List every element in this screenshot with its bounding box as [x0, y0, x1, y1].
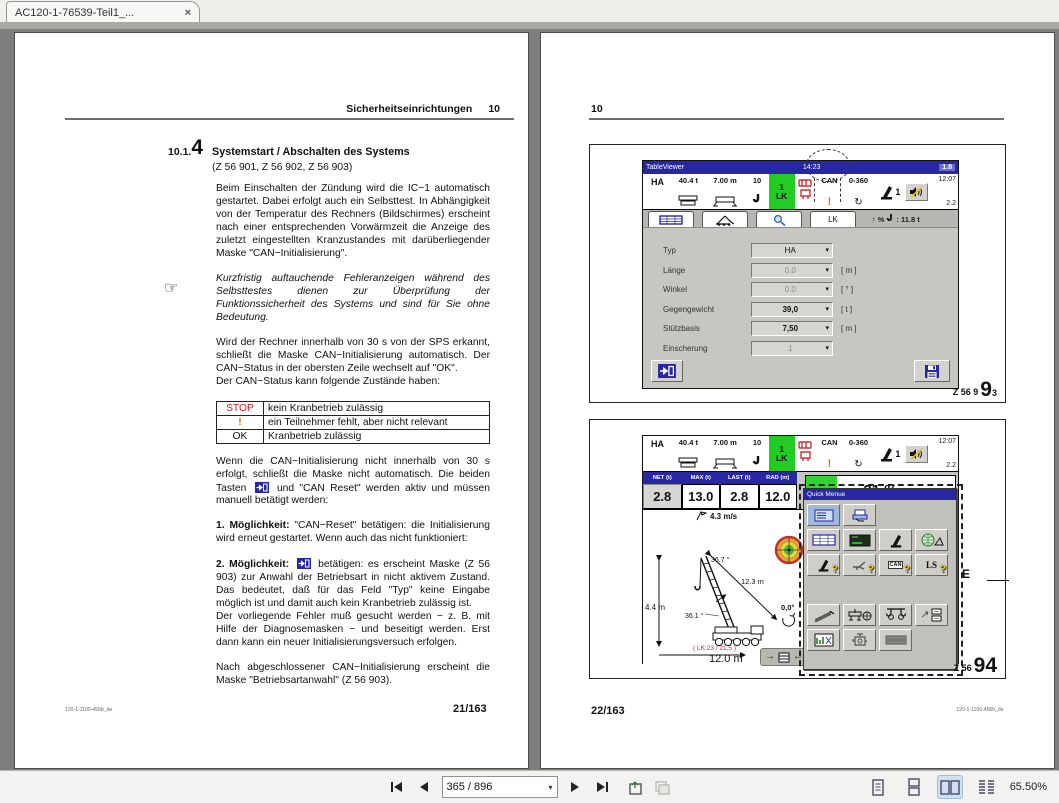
lever-number: 1 — [895, 449, 900, 459]
exit-mask-button[interactable] — [651, 360, 683, 382]
figure-ref-small: Z 56 — [954, 663, 972, 673]
page-navigation: 365 / 896 ▾ — [388, 771, 672, 803]
quickmenu-grid: ? ? CAN ? LS ? — [804, 500, 956, 655]
question-icon: ? — [868, 564, 874, 575]
hmi-status-bar: HA 40.4 t 7.00 m 10 — [643, 436, 958, 472]
hmi-titlebar: TableViewer 14:23 1.8 — [643, 161, 958, 174]
section-number-prefix: 10.1. — [168, 146, 191, 158]
clock-wind-cell: 12:07 2.2 — [929, 436, 958, 471]
mode-indicator: HA — [643, 174, 672, 209]
mute-button[interactable] — [905, 183, 928, 201]
clock-wind-cell: 12:07 2.2 — [929, 174, 958, 209]
previous-page-icon — [418, 781, 429, 793]
clock-value: 12:07 — [938, 438, 956, 445]
counterweight-icon — [677, 457, 699, 469]
load-chart-indicator: 1 LK — [769, 174, 795, 209]
figure-1: TableViewer 14:23 1.8 HA 40.4 t 7.00 m — [589, 144, 1006, 403]
can-label: CAN — [888, 561, 904, 569]
counterweight-cell: 40.4 t — [672, 174, 705, 209]
crane-icon — [712, 214, 738, 226]
counterweight-cell: 40.4 t — [672, 436, 705, 471]
stuetzbasis-dropdown[interactable]: 7,50 ▾ — [751, 321, 833, 336]
tab-search[interactable] — [756, 211, 802, 227]
single-page-icon — [871, 779, 885, 796]
laenge-dropdown[interactable]: 0.0 ▾ — [751, 263, 833, 278]
paragraph-text: Der CAN−Status kann folgende Zustände ha… — [216, 376, 490, 389]
hook-icon — [751, 193, 763, 207]
display-icon — [814, 509, 834, 522]
exit-mask-button-icon — [297, 558, 311, 569]
speaker-muted-icon — [909, 448, 924, 460]
paragraph: 2. Möglichkeit: betätigen: es erscheint … — [216, 558, 490, 650]
outrigger-icon — [712, 195, 738, 207]
can-state-desc: kein Kranbetrieb zulässig — [264, 401, 490, 415]
can-label: CAN — [821, 438, 837, 447]
tab-strip-shadow — [0, 22, 1059, 29]
chart-page-icon — [814, 633, 834, 647]
speaker-cell — [905, 174, 929, 209]
field-label: Typ — [663, 246, 751, 255]
field-label: Winkel — [663, 285, 751, 294]
rotation-icon: ↻ — [854, 198, 862, 207]
net-cell: NET (t) 2.8 — [643, 472, 682, 509]
ls-label: LS — [926, 560, 937, 570]
question-icon: ? — [940, 564, 946, 575]
reeving-value: 10 — [753, 176, 761, 185]
can-alert: ! — [828, 198, 832, 207]
page-number-input[interactable]: 365 / 896 ▾ — [442, 776, 558, 798]
rad-header: RAD (m) — [759, 472, 798, 484]
wind-value: 2.2 — [946, 462, 956, 469]
paragraph: Nach abgeschlossener CAN−Initialisierung… — [216, 662, 490, 688]
form-row: Stützbasis 7,50 ▾ [ m ] — [663, 319, 958, 339]
speaker-cell — [905, 436, 929, 471]
paragraph-text: Der vorliegende Fehler muß gesucht werde… — [216, 611, 490, 650]
qm-console-button[interactable] — [843, 529, 876, 551]
printer-hand-icon — [851, 508, 869, 522]
field-value: 39,0 — [755, 305, 825, 314]
annotation-circle — [806, 149, 850, 182]
hooks-icon — [885, 608, 907, 622]
grid-icon — [778, 652, 790, 663]
qm-engine-button[interactable] — [843, 629, 876, 651]
can-state-stop: STOP — [217, 401, 264, 415]
lever-number: 1 — [895, 187, 900, 197]
table-icon — [659, 215, 683, 225]
typ-dropdown[interactable]: HA ▾ — [751, 243, 833, 258]
section-title-block: Systemstart / Abschalten des Systems (Z … — [212, 146, 410, 173]
slew-angle-label: 0,0° — [781, 603, 794, 612]
qm-list-switch-button[interactable] — [915, 604, 948, 626]
joystick-icon — [880, 184, 893, 200]
can-state-desc: ein Teilnehmer fehlt, aber nicht relevan… — [264, 415, 490, 429]
view-controls: 65.50% — [866, 771, 1047, 803]
first-page-icon — [390, 781, 403, 793]
field-value: 1 — [755, 344, 825, 353]
floppy-disk-icon — [924, 364, 940, 379]
slew-range-cell: 0-360 ↻ — [841, 436, 876, 471]
quickmenu-window: Quick Menue — [803, 488, 957, 670]
tab-title: AC120-1-76539-Teil1_... — [15, 7, 179, 19]
can-state-desc: Kranbetrieb zulässig — [264, 429, 490, 443]
exit-mask-button-icon — [255, 482, 269, 493]
console-icon — [849, 534, 871, 547]
counterweight-icon — [677, 195, 699, 207]
page-number: 21/163 — [453, 703, 487, 715]
next-page-button[interactable] — [567, 778, 585, 796]
qm-outrigger-button[interactable] — [843, 604, 876, 626]
option-2-label: 2. Möglichkeit: — [216, 559, 289, 570]
counterweight-value: 40.4 t — [679, 176, 698, 185]
section-title: Systemstart / Abschalten des Systems — [212, 146, 410, 158]
header-title: Sicherheitseinrichtungen — [346, 103, 472, 115]
reeving-cell: 10 — [745, 436, 768, 471]
boom-angle-label: 36.1 ° — [685, 612, 704, 620]
field-label: Gegengewicht — [663, 305, 751, 314]
single-page-layout-button[interactable] — [866, 776, 890, 798]
percent-icon: % — [878, 215, 885, 224]
next-view-button[interactable] — [654, 778, 672, 796]
qm-print-button[interactable] — [843, 504, 876, 526]
section-refs: (Z 56 901, Z 56 902, Z 56 903) — [212, 162, 410, 173]
figure-ref-big: 9 — [980, 380, 992, 399]
table-row: OK Kranbetrieb zulässig — [217, 429, 490, 443]
callout-line — [987, 580, 1009, 581]
qm-hand-help-button[interactable]: ? — [843, 554, 876, 576]
boom-top-angle-label: 36.7 ° — [711, 556, 730, 564]
form-row: Länge 0.0 ▾ [ m ] — [663, 261, 958, 281]
document-tab[interactable]: AC120-1-76539-Teil1_... × — [6, 1, 200, 23]
qm-winch-button[interactable] — [879, 604, 912, 626]
lk-label: LK — [776, 192, 787, 201]
continuous-page-icon — [907, 778, 921, 796]
can-state-ok: OK — [217, 429, 264, 443]
wind-value: 2.2 — [946, 200, 956, 207]
document-id: 120-1-1100-456b_de — [65, 707, 112, 712]
height-dim-label: 4.4 m — [645, 603, 665, 612]
pointing-hand-icon: ☞ — [164, 279, 178, 299]
qm-chart-button[interactable] — [807, 629, 840, 651]
engine-icon — [852, 633, 868, 647]
app-title: TableViewer — [646, 164, 684, 171]
slew-range-value: 0-360 — [849, 438, 868, 447]
body-text-column: Beim Einschalten der Zündung wird die IC… — [216, 183, 490, 700]
figure-ref-small: Z 56 9 — [953, 387, 979, 397]
speaker-muted-icon — [909, 186, 924, 198]
field-unit: [ ° ] — [841, 285, 853, 294]
last-page-button[interactable] — [594, 778, 612, 796]
titlebar-version: 1.8 — [939, 164, 955, 171]
hmi-status-bar: HA 40.4 t 7.00 m 10 — [643, 174, 958, 210]
up-arrow-icon: ↑ — [872, 215, 876, 224]
section-number-big: 4 — [191, 137, 203, 158]
joystick-icon — [880, 446, 893, 462]
field-value: 7,50 — [755, 324, 825, 333]
mode-indicator: HA — [643, 436, 672, 471]
field-unit: [ m ] — [841, 324, 857, 333]
last-page-icon — [596, 781, 609, 793]
reeving-cell: 10 — [745, 174, 768, 209]
field-label: Länge — [663, 266, 751, 275]
boom-length-label: 12.3 m — [741, 577, 764, 586]
document-id: 120-1-1100-456b_de — [957, 707, 1004, 712]
chevron-down-icon: ▾ — [548, 783, 552, 792]
exit-door-icon — [658, 364, 676, 378]
net-header: NET (t) — [643, 472, 682, 484]
figure-ref-sub: 3 — [992, 388, 997, 398]
gray-bars-icon — [885, 635, 907, 645]
outrigger-target-icon — [848, 608, 872, 622]
next-page-icon — [570, 781, 581, 793]
header-rule — [589, 118, 1004, 120]
can-state-warning: ! — [217, 415, 264, 429]
last-cell: LAST (t) 2.8 — [720, 472, 759, 509]
annotation-line — [840, 178, 841, 202]
note-paragraph: ☞ Kurzfristig auftauchende Fehleranzeige… — [216, 273, 490, 325]
field-unit: [ t ] — [841, 305, 852, 314]
arrow-list-icon — [920, 608, 944, 622]
form-row: Gegengewicht 39,0 ▾ [ t ] — [663, 300, 958, 320]
joystick-icon — [889, 533, 903, 548]
base-value: 7.00 m — [713, 438, 736, 447]
quickmenu-titlebar: Quick Menue — [804, 489, 956, 500]
next-view-icon — [654, 780, 671, 795]
question-icon: ? — [832, 564, 838, 575]
continuous-layout-button[interactable] — [902, 776, 926, 798]
outrigger-base-cell: 7.00 m — [705, 436, 746, 471]
form-row: Einscherung 1 ▾ — [663, 339, 958, 359]
can-alert: ! — [828, 460, 832, 469]
can-status-cell: CAN ! — [818, 436, 841, 471]
outrigger-icon — [712, 457, 738, 469]
previous-page-button[interactable] — [415, 778, 433, 796]
paragraph: Beim Einschalten der Zündung wird die IC… — [216, 183, 490, 261]
counterweight-value: 40.4 t — [679, 438, 698, 447]
lk-label: LK — [776, 454, 787, 463]
crane-config-form: Typ HA ▾ Länge 0.0 ▾ [ m ] Wink — [643, 228, 958, 358]
pdf-toolbar: 365 / 896 ▾ — [0, 770, 1059, 803]
chevron-down-icon: ▾ — [825, 325, 829, 332]
figure-2: HA 40.4 t 7.00 m 10 — [589, 419, 1006, 679]
qm-worldview-button[interactable] — [915, 529, 948, 551]
figure-2-label: Z 56 94 — [954, 656, 997, 675]
field-value: HA — [755, 246, 825, 255]
chevron-down-icon: ▾ — [825, 267, 829, 274]
outrigger-base-cell: 7.00 m — [705, 174, 746, 209]
form-row: Typ HA ▾ — [663, 241, 958, 261]
globe-crane-icon — [920, 533, 944, 548]
callout-e-label: E — [962, 567, 970, 581]
qm-can-help-button[interactable]: CAN ? — [879, 554, 912, 576]
figure-ref-big: 94 — [974, 656, 997, 675]
hook-load-value: : 11.8 t — [896, 215, 919, 224]
browser-tab-bar: AC120-1-76539-Teil1_... × — [0, 0, 1059, 22]
lever-cell: 1 — [876, 436, 905, 471]
qm-ls-help-button[interactable]: LS ? — [915, 554, 948, 576]
field-value: 0.0 — [755, 285, 825, 294]
header-chapter: 10 — [488, 103, 500, 115]
chevron-down-icon: ▾ — [825, 345, 829, 352]
field-label: Stützbasis — [663, 324, 751, 333]
last-header: LAST (t) — [720, 472, 759, 484]
qm-empty-slot — [879, 504, 912, 526]
hmi-tab-row: LK ↑ % : 11.8 t — [643, 210, 958, 228]
section-heading: 10.1. 4 Systemstart / Abschalten des Sys… — [168, 137, 410, 173]
qm-display-button[interactable] — [807, 504, 840, 526]
page-number: 22/163 — [591, 705, 625, 717]
lever-cell: 1 — [876, 174, 905, 209]
table-row: ! ein Teilnehmer fehlt, aber nicht relev… — [217, 415, 490, 429]
note-text: Kurzfristig auftauchende Fehleranzeigen … — [216, 273, 490, 323]
header-rule — [65, 118, 514, 120]
qm-lever-help-button[interactable]: ? — [807, 554, 840, 576]
max-value: 13.0 — [682, 484, 721, 509]
tab-crane[interactable] — [702, 211, 748, 227]
first-page-button[interactable] — [388, 778, 406, 796]
document-page-right: 10 TableViewer 14:23 1.8 HA 40.4 t — [540, 32, 1055, 769]
close-icon[interactable]: × — [185, 7, 191, 19]
rotation-icon: ↻ — [854, 460, 862, 469]
hand-icon — [852, 559, 868, 571]
page-number-value: 365 / 896 — [447, 781, 549, 793]
crane-config-cell — [795, 436, 818, 471]
paragraph: Wird der Rechner innerhalb von 30 s von … — [216, 337, 490, 389]
magnifier-icon — [773, 214, 786, 226]
paragraph: 1. Möglichkeit: "CAN−Reset" betätigen: d… — [216, 520, 490, 546]
save-button[interactable] — [914, 360, 950, 382]
field-value: 0.0 — [755, 266, 825, 275]
header-chapter: 10 — [591, 103, 603, 115]
joystick-icon — [817, 558, 830, 572]
chevron-down-icon: ▾ — [825, 247, 829, 254]
slew-range-value: 0-360 — [849, 176, 868, 185]
lk-note-label: ( LK:23 / 21,5 ) — [693, 645, 736, 652]
field-unit: [ m ] — [841, 266, 857, 275]
gegengewicht-dropdown[interactable]: 39,0 ▾ — [751, 302, 833, 317]
table-icon — [812, 534, 836, 546]
can-status-table: STOP kein Kranbetrieb zulässig ! ein Tei… — [216, 401, 490, 444]
chevron-down-icon: ▾ — [825, 306, 829, 313]
net-value: 2.8 — [643, 484, 682, 509]
arrow-right-icon: → — [765, 652, 775, 662]
reeving-value: 10 — [753, 438, 761, 447]
load-chart-indicator: 1 LK — [769, 436, 795, 471]
previous-view-button[interactable] — [627, 778, 645, 796]
einscherung-dropdown[interactable]: 1 ▾ — [751, 341, 833, 356]
tab-table[interactable] — [648, 211, 694, 227]
clock-value: 12:07 — [938, 176, 956, 183]
two-page-icon — [940, 780, 960, 795]
option-1-label: 1. Möglichkeit: — [216, 520, 290, 531]
figure-1-label: Z 56 9 9 3 — [953, 380, 997, 399]
document-page-left: Sicherheitseinrichtungen 10 10.1. 4 Syst… — [14, 32, 529, 769]
hook-load-info: ↑ % : 11.8 t — [872, 214, 920, 225]
previous-view-icon — [627, 780, 644, 795]
annotation-line — [814, 178, 815, 202]
last-value: 2.8 — [720, 484, 759, 509]
hmi-screenshot-tableviewer: TableViewer 14:23 1.8 HA 40.4 t 7.00 m — [642, 160, 959, 389]
winkel-dropdown[interactable]: 0.0 ▾ — [751, 282, 833, 297]
table-row: STOP kein Kranbetrieb zulässig — [217, 401, 490, 415]
qm-boom-button[interactable] — [807, 604, 840, 626]
base-value: 7.00 m — [713, 176, 736, 185]
chevron-down-icon: ▾ — [825, 286, 829, 293]
zoom-level: 65.50% — [1010, 781, 1047, 793]
two-page-layout-button[interactable] — [938, 776, 962, 798]
two-page-continuous-button[interactable] — [974, 776, 998, 798]
qm-spacer — [807, 579, 948, 595]
qm-bars-button[interactable] — [879, 629, 912, 651]
max-cell: MAX (t) 13.0 — [682, 472, 721, 509]
slew-range-cell: 0-360 ↻ — [841, 174, 876, 209]
rad-value: 12.0 — [759, 484, 798, 509]
tab-lk[interactable]: LK — [810, 211, 856, 227]
two-page-continuous-icon — [976, 779, 996, 795]
max-header: MAX (t) — [682, 472, 721, 484]
mute-button[interactable] — [905, 445, 928, 463]
page-running-header: Sicherheitseinrichtungen 10 — [346, 103, 500, 115]
boom-icon — [813, 609, 835, 622]
question-icon: ? — [904, 564, 910, 575]
field-label: Einscherung — [663, 344, 751, 353]
form-row: Winkel 0.0 ▾ [ ° ] — [663, 280, 958, 300]
tab-lk-label: LK — [828, 215, 838, 224]
hook-icon — [886, 214, 894, 225]
radius-label: 12.0 m — [709, 653, 743, 664]
hook-icon — [751, 455, 763, 469]
qm-lever-button[interactable] — [879, 529, 912, 551]
paragraph: Wenn die CAN−Initialisierung nicht inner… — [216, 456, 490, 509]
paragraph-text: Wird der Rechner innerhalb von 30 s von … — [216, 337, 490, 374]
rad-cell: RAD (m) 12.0 — [759, 472, 798, 509]
qm-table-button[interactable] — [807, 529, 840, 551]
crane-config-icon — [796, 438, 816, 464]
qm-empty-slot — [915, 504, 948, 526]
